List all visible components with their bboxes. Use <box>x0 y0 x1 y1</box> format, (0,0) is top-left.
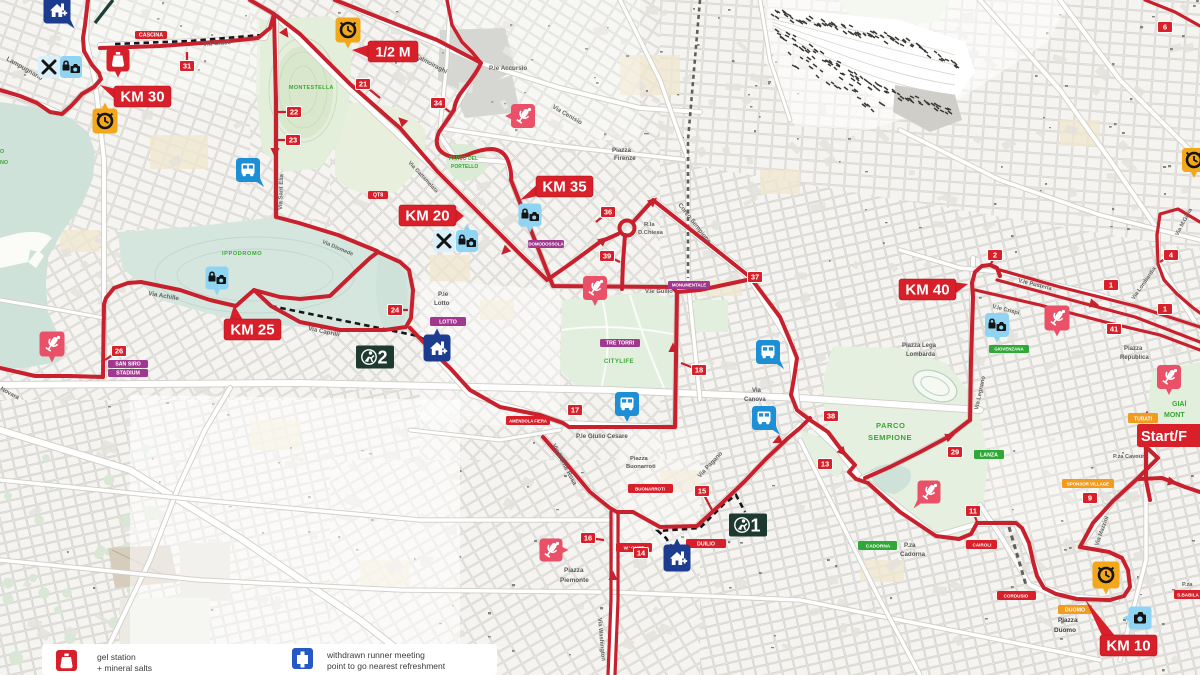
svg-text:38: 38 <box>827 412 835 421</box>
svg-text:24: 24 <box>391 306 400 315</box>
svg-text:39: 39 <box>603 252 611 261</box>
svg-text:V.le Guilio: V.le Guilio <box>645 289 673 295</box>
svg-text:CAIROLI: CAIROLI <box>973 543 992 548</box>
svg-text:R.la: R.la <box>644 222 655 228</box>
svg-text:Piazza: Piazza <box>612 147 631 154</box>
svg-text:P.za: P.za <box>904 542 916 549</box>
svg-text:P.le Accursio: P.le Accursio <box>489 65 527 72</box>
svg-text:KM 35: KM 35 <box>542 179 586 196</box>
svg-text:MONTESTELLA: MONTESTELLA <box>289 85 334 91</box>
svg-text:AMENDOLA FIERA: AMENDOLA FIERA <box>509 419 547 424</box>
svg-text:41: 41 <box>1110 325 1118 334</box>
svg-text:1: 1 <box>1163 305 1167 314</box>
svg-text:17: 17 <box>571 406 579 415</box>
svg-text:P.za Cavour: P.za Cavour <box>1113 454 1145 460</box>
svg-text:TRE TORRI: TRE TORRI <box>606 341 635 347</box>
svg-text:KM 30: KM 30 <box>120 89 164 106</box>
svg-text:Piazza: Piazza <box>1124 346 1143 352</box>
svg-text:1: 1 <box>1109 281 1113 290</box>
svg-text:LANZA: LANZA <box>980 453 998 459</box>
svg-text:CORDUSIO: CORDUSIO <box>1004 594 1029 599</box>
svg-text:Duomo: Duomo <box>1054 627 1076 634</box>
svg-text:P.le Giulio Cesare: P.le Giulio Cesare <box>576 433 628 440</box>
svg-text:SPONSOR VILLAGE: SPONSOR VILLAGE <box>1067 482 1109 487</box>
svg-text:21: 21 <box>359 80 367 89</box>
svg-text:CADORNA: CADORNA <box>866 544 891 550</box>
svg-text:SEMPIONE: SEMPIONE <box>868 433 912 442</box>
svg-text:+ mineral salts: + mineral salts <box>97 663 152 673</box>
svg-text:KM 10: KM 10 <box>1106 638 1150 655</box>
svg-text:P.le: P.le <box>438 291 449 298</box>
svg-text:SAN SIRO: SAN SIRO <box>115 362 141 368</box>
svg-text:S.BABILA: S.BABILA <box>1177 593 1199 598</box>
svg-text:9: 9 <box>1088 494 1092 503</box>
svg-text:Piemonte: Piemonte <box>560 577 589 584</box>
svg-text:36: 36 <box>604 208 612 217</box>
svg-text:16: 16 <box>584 534 592 543</box>
svg-text:34: 34 <box>434 99 443 108</box>
svg-text:6: 6 <box>1163 23 1167 32</box>
svg-text:Via: Via <box>752 388 762 394</box>
svg-text:Republica: Republica <box>1120 355 1149 361</box>
svg-text:Firenze: Firenze <box>614 155 636 162</box>
svg-text:1/2 M: 1/2 M <box>375 44 410 60</box>
svg-text:Lombarda: Lombarda <box>906 352 936 358</box>
svg-text:Cadorna: Cadorna <box>900 551 926 558</box>
svg-text:2: 2 <box>993 251 997 260</box>
svg-text:P.za: P.za <box>1182 582 1193 588</box>
svg-text:TURATI: TURATI <box>1134 417 1153 423</box>
svg-text:DUILIO: DUILIO <box>697 542 715 548</box>
svg-text:KM 25: KM 25 <box>230 322 274 339</box>
svg-text:23: 23 <box>289 136 297 145</box>
svg-text:MONT: MONT <box>1164 412 1185 419</box>
svg-text:CASCINA: CASCINA <box>139 33 163 39</box>
svg-text:STADIUM: STADIUM <box>116 371 140 377</box>
svg-text:GIAl: GIAl <box>1172 401 1186 408</box>
svg-text:MONUMENTALE: MONUMENTALE <box>672 283 706 288</box>
svg-text:CITYLIFE: CITYLIFE <box>604 359 634 365</box>
svg-text:26: 26 <box>115 347 123 356</box>
svg-text:KM 20: KM 20 <box>405 208 449 225</box>
svg-text:DOMODOSSOLA: DOMODOSSOLA <box>528 242 564 247</box>
svg-text:DUOMO: DUOMO <box>1065 608 1085 614</box>
svg-text:Piazza: Piazza <box>1058 617 1078 624</box>
svg-text:BUONARROTI: BUONARROTI <box>635 487 665 492</box>
svg-text:D.Chiesa: D.Chiesa <box>638 230 664 236</box>
svg-text:1: 1 <box>750 516 760 536</box>
svg-text:O: O <box>0 149 4 155</box>
svg-text:IPPODROMO: IPPODROMO <box>222 251 262 257</box>
svg-text:GIOVENZANA: GIOVENZANA <box>994 347 1024 352</box>
svg-text:11: 11 <box>969 507 977 516</box>
svg-text:NO: NO <box>0 160 8 166</box>
svg-text:31: 31 <box>183 62 191 71</box>
svg-text:2: 2 <box>377 348 387 368</box>
svg-text:22: 22 <box>290 108 298 117</box>
svg-text:KM 40: KM 40 <box>905 282 949 299</box>
svg-text:Start/F: Start/F <box>1141 429 1187 445</box>
svg-text:gel station: gel station <box>97 652 136 662</box>
svg-text:Piazza: Piazza <box>630 456 648 462</box>
svg-text:37: 37 <box>751 273 759 282</box>
svg-text:Canova: Canova <box>744 397 766 403</box>
svg-text:LOTTO: LOTTO <box>439 320 457 326</box>
svg-text:14: 14 <box>637 549 646 558</box>
svg-text:PARCO DEL: PARCO DEL <box>449 156 478 162</box>
svg-text:Buonarroti: Buonarroti <box>626 464 656 470</box>
svg-text:29: 29 <box>951 448 959 457</box>
svg-text:Piazza: Piazza <box>564 567 584 574</box>
svg-text:PORTELLO: PORTELLO <box>451 164 478 170</box>
svg-text:Via Sant Elia: Via Sant Elia <box>278 173 285 210</box>
svg-text:18: 18 <box>695 366 703 375</box>
svg-text:13: 13 <box>821 460 829 469</box>
svg-text:PARCO: PARCO <box>876 421 905 430</box>
svg-text:Piazza Lega: Piazza Lega <box>902 343 937 349</box>
svg-text:Lotto: Lotto <box>434 300 450 307</box>
svg-text:withdrawn runner meeting: withdrawn runner meeting <box>326 650 425 660</box>
svg-text:15: 15 <box>698 487 706 496</box>
svg-text:QT8: QT8 <box>373 193 383 199</box>
svg-text:point to go nearest refreshmen: point to go nearest refreshment <box>327 661 446 671</box>
